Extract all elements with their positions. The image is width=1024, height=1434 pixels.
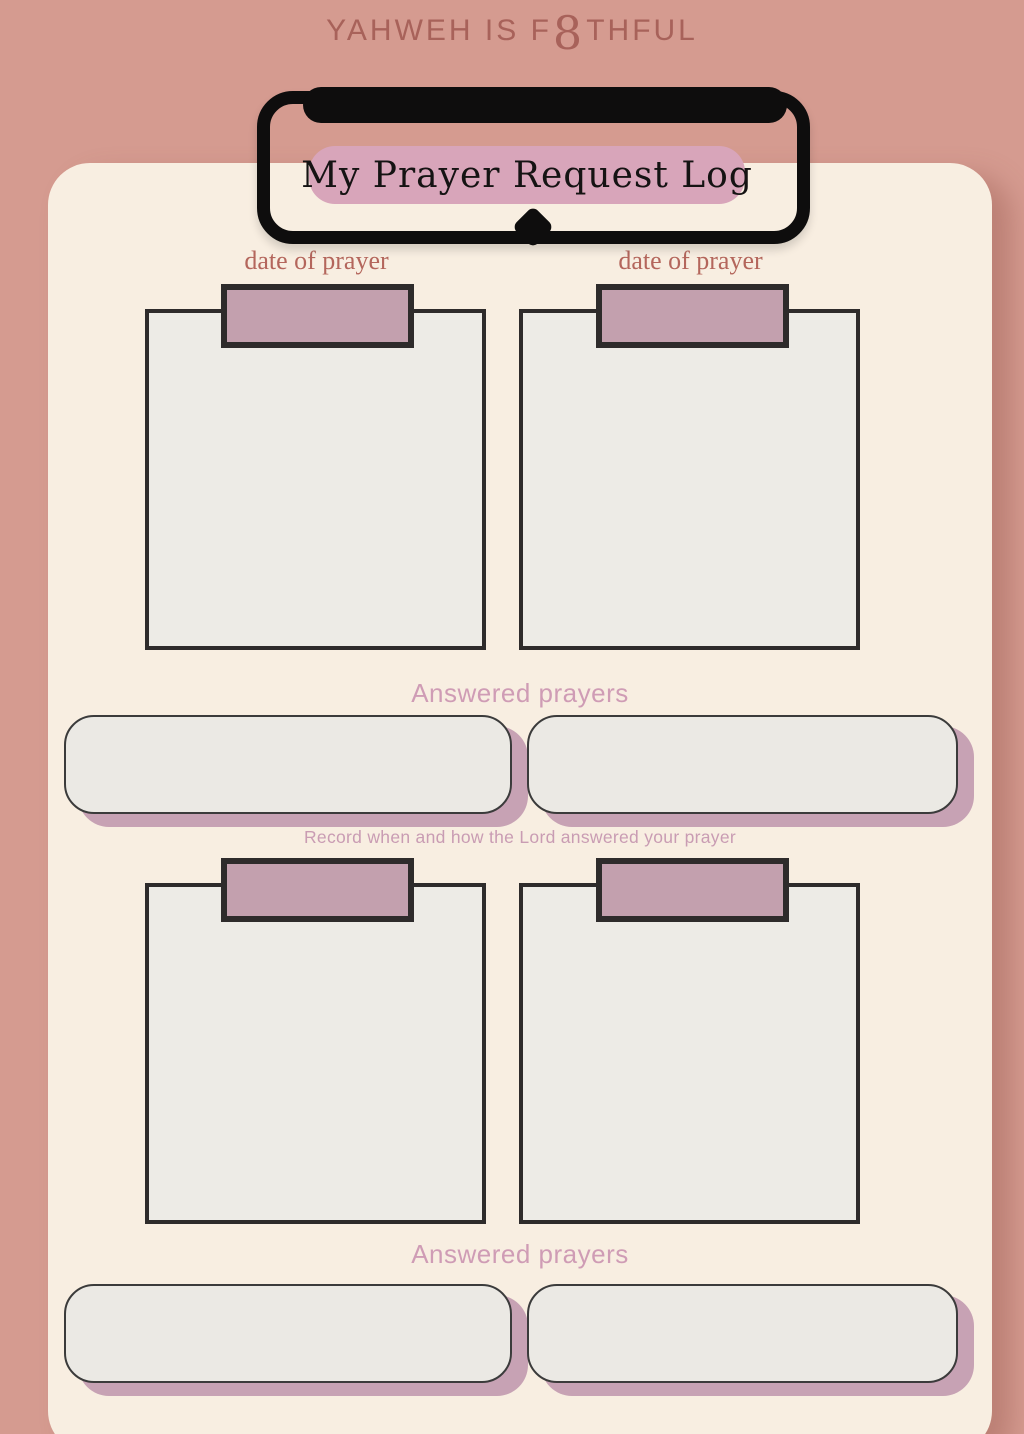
answered-prayers-heading: Answered prayers <box>48 678 992 709</box>
clip-bar-icon <box>303 87 787 123</box>
record-instruction-note: Record when and how the Lord answered yo… <box>48 827 992 848</box>
answered-prayer-slot[interactable] <box>64 715 512 814</box>
date-tab-field[interactable] <box>221 284 414 348</box>
prayer-request-box[interactable] <box>145 309 486 650</box>
date-tab-field[interactable] <box>596 284 789 348</box>
date-tab-field[interactable] <box>221 858 414 922</box>
date-tab-field[interactable] <box>596 858 789 922</box>
answered-prayer-slot[interactable] <box>527 715 958 814</box>
brand-suffix: THFUL <box>586 14 698 47</box>
prayer-request-box[interactable] <box>519 309 860 650</box>
date-of-prayer-label-right: date of prayer <box>519 246 862 276</box>
answered-prayer-slot[interactable] <box>64 1284 512 1383</box>
title-pill: My Prayer Request Log <box>309 146 745 204</box>
brand-prefix: YAHWEH IS F <box>326 14 552 47</box>
page-background: YAHWEH IS F8THFUL My Prayer Request Log … <box>0 0 1024 1434</box>
answered-prayers-heading: Answered prayers <box>48 1239 992 1270</box>
date-of-prayer-label-left: date of prayer <box>145 246 488 276</box>
page-title: My Prayer Request Log <box>301 155 753 196</box>
brand-text: YAHWEH IS F8THFUL <box>0 14 1024 48</box>
prayer-request-box[interactable] <box>519 883 860 1224</box>
answered-prayer-slot[interactable] <box>527 1284 958 1383</box>
prayer-request-box[interactable] <box>145 883 486 1224</box>
